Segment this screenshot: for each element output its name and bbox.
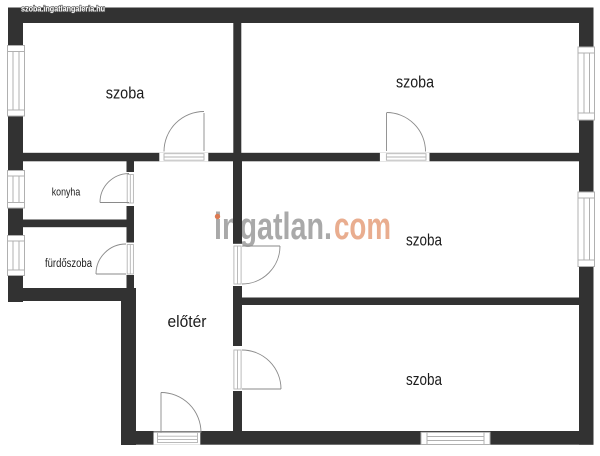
svg-text:előtér: előtér (168, 312, 207, 331)
svg-text:fürdőszoba: fürdőszoba (45, 258, 92, 270)
svg-text:szoba: szoba (106, 84, 145, 103)
svg-text:szoba: szoba (406, 231, 442, 250)
svg-text:szoba: szoba (396, 73, 434, 92)
svg-text:ingatlan.: ingatlan. (214, 206, 332, 248)
svg-text:szoba.ingatlangaleria.hu: szoba.ingatlangaleria.hu (21, 4, 105, 14)
svg-text:konyha: konyha (52, 187, 81, 199)
svg-text:szoba: szoba (406, 370, 442, 389)
svg-text:com: com (334, 206, 391, 248)
